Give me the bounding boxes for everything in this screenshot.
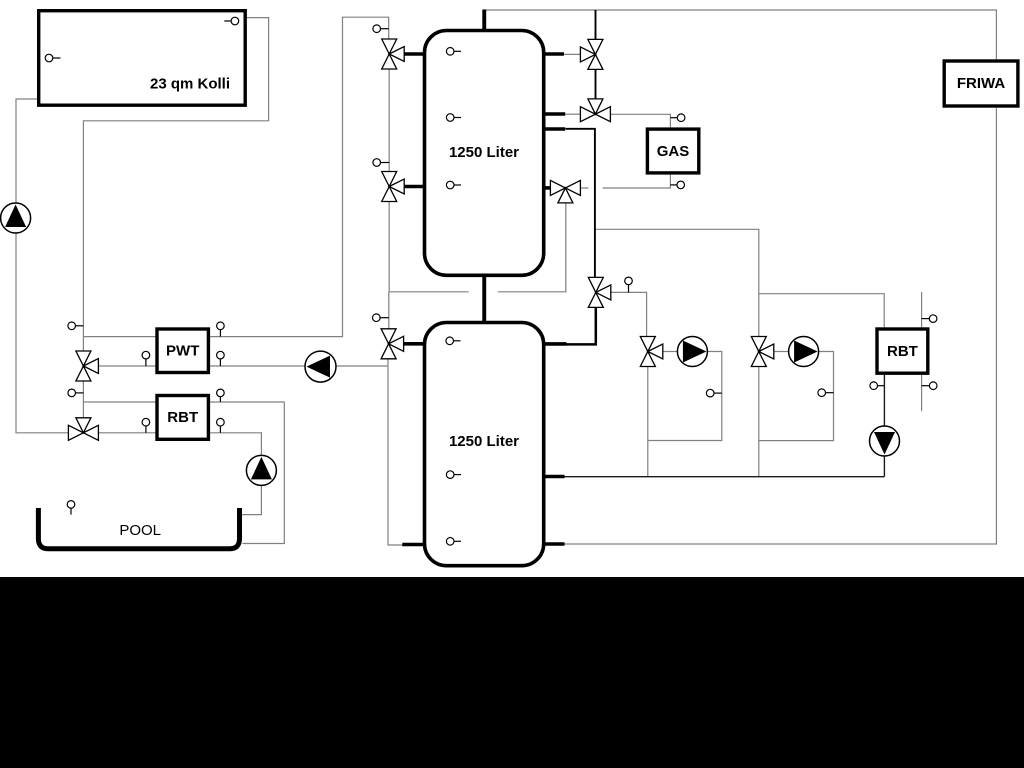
- svg-text:RBT: RBT: [167, 409, 198, 426]
- svg-text:PWT: PWT: [166, 343, 199, 360]
- svg-text:1250 Liter: 1250 Liter: [449, 433, 519, 450]
- svg-text:GAS: GAS: [657, 143, 690, 160]
- svg-text:RBT: RBT: [887, 343, 918, 360]
- svg-text:1250 Liter: 1250 Liter: [449, 144, 519, 161]
- svg-text:POOL: POOL: [119, 522, 161, 539]
- svg-text:FRIWA: FRIWA: [957, 75, 1005, 92]
- svg-text:23 qm Kolli: 23 qm Kolli: [150, 76, 230, 93]
